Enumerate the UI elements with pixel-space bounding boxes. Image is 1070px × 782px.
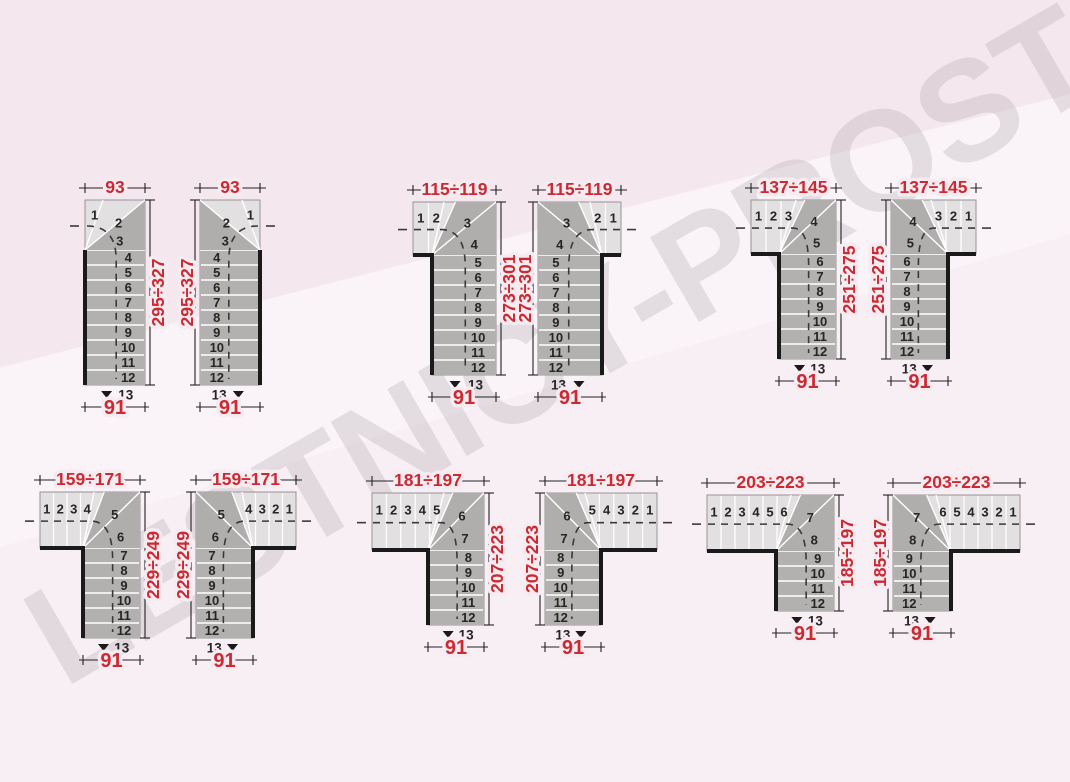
- step-number: 11: [813, 329, 827, 344]
- step-number: 1: [755, 209, 762, 224]
- dimension-side-label: 251÷275: [839, 245, 859, 313]
- dimension-top-label: 159÷171: [212, 469, 280, 489]
- step-number: 8: [557, 550, 564, 565]
- dimension-top-label: 181÷197: [394, 470, 462, 490]
- step-number: 5: [474, 255, 481, 270]
- dimension-bottom-label: 91: [559, 387, 581, 409]
- step-number: 3: [563, 216, 570, 231]
- dimension-top-label: 137÷145: [759, 177, 827, 197]
- step-number: 9: [552, 315, 559, 330]
- step-number: 12: [900, 344, 914, 359]
- dimension-bottom-label: 91: [219, 397, 241, 419]
- dimension-bottom-label: 91: [562, 637, 584, 659]
- step-number: 8: [465, 550, 472, 565]
- step-number: 10: [811, 566, 825, 581]
- flight-area: [85, 250, 145, 385]
- step-number: 10: [121, 340, 135, 355]
- step-number: 8: [208, 563, 215, 578]
- step-number: 1: [1009, 504, 1016, 519]
- step-number: 5: [552, 255, 559, 270]
- step-number: 1: [417, 210, 424, 225]
- step-number: 10: [117, 593, 131, 608]
- step-number: 9: [906, 551, 913, 566]
- step-number: 6: [780, 504, 787, 519]
- dimension-side-label: 251÷275: [868, 245, 888, 313]
- step-number: 7: [474, 285, 481, 300]
- staircase-93-right: 1234567891011121393295÷32791: [177, 177, 275, 419]
- staircase-115-119-right: 12345678910111213115÷119273÷30191: [515, 179, 636, 409]
- step-number: 1: [965, 209, 972, 224]
- dimension-side-label: 295÷327: [177, 258, 197, 326]
- step-number: 7: [552, 285, 559, 300]
- step-number: 1: [376, 503, 383, 518]
- step-number: 4: [752, 504, 760, 519]
- step-number: 8: [903, 284, 910, 299]
- step-number: 1: [43, 501, 50, 516]
- dimension-top-label: 115÷119: [421, 179, 487, 199]
- step-number: 6: [458, 508, 465, 523]
- step-number: 12: [902, 596, 916, 611]
- step-number: 2: [272, 501, 279, 516]
- dimension-bottom-label: 91: [796, 371, 818, 393]
- step-number: 2: [950, 209, 957, 224]
- step-number: 7: [208, 548, 215, 563]
- step-number: 6: [213, 280, 220, 295]
- step-number: 9: [213, 325, 220, 340]
- dimension-bottom-label: 91: [104, 397, 126, 419]
- step-number: 10: [210, 340, 224, 355]
- step-number: 9: [903, 299, 910, 314]
- dimension-top-label: 93: [105, 177, 125, 197]
- step-number: 4: [556, 237, 564, 252]
- step-number: 2: [223, 216, 230, 231]
- step-number: 12: [461, 610, 475, 625]
- step-number: 6: [939, 504, 946, 519]
- dimension-top-label: 115÷119: [546, 179, 612, 199]
- staircase-diagrams-canvas: LESTNICY-PROSTO.RU 123456789101112139329…: [0, 0, 1070, 782]
- step-number: 4: [245, 501, 253, 516]
- step-number: 9: [208, 578, 215, 593]
- step-number: 3: [116, 234, 123, 249]
- step-number: 6: [552, 270, 559, 285]
- step-number: 5: [125, 265, 132, 280]
- step-number: 3: [738, 504, 745, 519]
- step-number: 11: [554, 595, 568, 610]
- step-number: 9: [474, 315, 481, 330]
- step-number: 8: [474, 300, 481, 315]
- step-number: 8: [811, 532, 818, 547]
- step-number: 12: [813, 344, 827, 359]
- step-number: 7: [807, 510, 814, 525]
- step-number: 9: [120, 578, 127, 593]
- step-number: 4: [419, 503, 427, 518]
- staircase-115-119-left: 12345678910111213115÷119273÷30191: [398, 179, 519, 409]
- flight-area: [779, 254, 836, 359]
- dimension-bottom-label: 91: [453, 387, 475, 409]
- step-number: 3: [259, 501, 266, 516]
- step-number: 2: [57, 501, 64, 516]
- dimension-side-label: 185÷197: [837, 519, 857, 587]
- step-number: 5: [218, 507, 225, 522]
- step-number: 3: [935, 209, 942, 224]
- step-number: 4: [84, 501, 92, 516]
- step-number: 1: [286, 501, 293, 516]
- step-number: 4: [125, 250, 133, 265]
- step-number: 6: [474, 270, 481, 285]
- step-number: 8: [125, 310, 132, 325]
- step-number: 8: [213, 310, 220, 325]
- step-number: 7: [120, 548, 127, 563]
- step-number: 9: [816, 299, 823, 314]
- dimension-side-label: 273÷301: [515, 254, 535, 322]
- dimension-side-label: 229÷249: [173, 531, 193, 599]
- dimension-bottom-label: 91: [213, 650, 235, 672]
- staircase-159-171-right: 12345678910111213159÷171229÷24991: [173, 469, 311, 672]
- step-number: 4: [471, 237, 479, 252]
- step-number: 2: [770, 209, 777, 224]
- step-number: 5: [813, 236, 820, 251]
- step-number: 7: [461, 531, 468, 546]
- dimension-top-label: 137÷145: [899, 177, 967, 197]
- step-number: 6: [125, 280, 132, 295]
- step-number: 6: [816, 254, 823, 269]
- dimension-top-label: 203÷223: [922, 472, 990, 492]
- step-number: 6: [903, 254, 910, 269]
- step-number: 5: [213, 265, 220, 280]
- step-number: 2: [724, 504, 731, 519]
- step-number: 7: [903, 269, 910, 284]
- dimension-top-label: 181÷197: [567, 470, 635, 490]
- step-number: 10: [900, 314, 914, 329]
- step-number: 4: [213, 250, 221, 265]
- wall-line: [707, 551, 776, 611]
- step-number: 4: [603, 503, 611, 518]
- staircase-93-left: 1234567891011121393295÷32791: [70, 177, 168, 419]
- step-number: 12: [117, 623, 131, 638]
- step-number: 6: [117, 529, 124, 544]
- dimension-side-label: 207÷223: [487, 525, 507, 593]
- step-number: 10: [902, 566, 916, 581]
- wall-line: [40, 548, 83, 638]
- dimension-bottom-label: 91: [100, 650, 122, 672]
- step-number: 2: [115, 216, 122, 231]
- dimension-top-label: 203÷223: [736, 472, 804, 492]
- step-number: 7: [913, 510, 920, 525]
- step-number: 3: [981, 504, 988, 519]
- staircase-137-145-right: 12345678910111213137÷145251÷27591: [868, 177, 991, 393]
- step-number: 7: [213, 295, 220, 310]
- step-number: 10: [553, 580, 567, 595]
- dimension-bottom-label: 91: [911, 623, 933, 645]
- step-number: 1: [247, 208, 254, 223]
- step-number: 9: [465, 565, 472, 580]
- step-number: 5: [766, 504, 773, 519]
- step-number: 7: [125, 295, 132, 310]
- wall-line: [601, 550, 657, 625]
- step-number: 1: [646, 503, 653, 518]
- step-number: 12: [121, 370, 135, 385]
- flight-area: [428, 550, 484, 625]
- staircase-181-197-right: 12345678910111213181÷197207÷22391: [522, 470, 672, 659]
- step-number: 4: [810, 214, 818, 229]
- step-number: 3: [404, 503, 411, 518]
- step-number: 10: [471, 330, 485, 345]
- step-number: 2: [433, 210, 440, 225]
- step-number: 2: [995, 504, 1002, 519]
- wall-line: [413, 255, 432, 375]
- step-number: 11: [811, 581, 825, 596]
- dimension-top-label: 93: [220, 177, 240, 197]
- step-number: 3: [222, 234, 229, 249]
- step-number: 6: [563, 508, 570, 523]
- dimension-side-label: 229÷249: [143, 531, 163, 599]
- staircase-181-197-left: 12345678910111213181÷197207÷22391: [357, 470, 507, 659]
- step-number: 4: [909, 214, 917, 229]
- step-number: 8: [816, 284, 823, 299]
- step-number: 12: [811, 596, 825, 611]
- step-number: 10: [461, 580, 475, 595]
- step-number: 1: [610, 210, 617, 225]
- step-number: 11: [121, 355, 135, 370]
- staircase-137-145-left: 12345678910111213137÷145251÷27591: [736, 177, 859, 393]
- step-number: 5: [953, 504, 960, 519]
- step-number: 8: [120, 563, 127, 578]
- wall-line: [253, 548, 296, 638]
- dimension-bottom-label: 91: [794, 623, 816, 645]
- step-number: 10: [813, 314, 827, 329]
- step-number: 12: [549, 360, 563, 375]
- step-number: 9: [814, 551, 821, 566]
- step-number: 11: [900, 329, 914, 344]
- step-number: 3: [70, 501, 77, 516]
- step-number: 5: [907, 236, 914, 251]
- step-number: 1: [91, 208, 98, 223]
- wall-line: [751, 254, 779, 359]
- step-number: 12: [553, 610, 567, 625]
- wall-line: [602, 255, 621, 375]
- dimension-side-label: 207÷223: [522, 525, 542, 593]
- step-number: 9: [125, 325, 132, 340]
- dimension-bottom-label: 91: [445, 637, 467, 659]
- step-number: 11: [210, 355, 224, 370]
- step-number: 10: [549, 330, 563, 345]
- step-number: 7: [816, 269, 823, 284]
- step-number: 7: [560, 531, 567, 546]
- staircase-203-223-left: 12345678910111213203÷223185÷19791: [692, 472, 857, 645]
- step-number: 11: [205, 608, 219, 623]
- dimension-top-label: 159÷171: [56, 469, 124, 489]
- step-number: 12: [471, 360, 485, 375]
- step-number: 2: [390, 503, 397, 518]
- step-number: 2: [632, 503, 639, 518]
- step-number: 3: [464, 216, 471, 231]
- staircase-159-171-left: 12345678910111213159÷171229÷24991: [25, 469, 163, 672]
- dimension-bottom-label: 91: [908, 371, 930, 393]
- step-number: 8: [552, 300, 559, 315]
- step-number: 10: [205, 593, 219, 608]
- wall-line: [948, 254, 976, 359]
- step-number: 12: [205, 623, 219, 638]
- step-number: 8: [909, 532, 916, 547]
- step-number: 6: [212, 529, 219, 544]
- wall-line: [951, 551, 1020, 611]
- step-number: 11: [549, 345, 563, 360]
- staircase-diagrams: 1234567891011121393295÷32791123456789101…: [0, 0, 1070, 782]
- step-number: 1: [710, 504, 717, 519]
- step-number: 3: [785, 209, 792, 224]
- wall-line: [372, 550, 428, 625]
- step-number: 5: [111, 507, 118, 522]
- step-number: 11: [471, 345, 485, 360]
- step-number: 5: [589, 503, 596, 518]
- step-number: 12: [210, 370, 224, 385]
- dimension-side-label: 185÷197: [870, 519, 890, 587]
- step-number: 3: [617, 503, 624, 518]
- step-number: 11: [117, 608, 131, 623]
- step-number: 2: [594, 210, 601, 225]
- step-number: 9: [557, 565, 564, 580]
- step-number: 4: [967, 504, 975, 519]
- step-number: 5: [433, 503, 440, 518]
- staircase-203-223-right: 12345678910111213203÷223185÷19791: [870, 472, 1035, 645]
- step-number: 11: [461, 595, 475, 610]
- step-number: 11: [902, 581, 916, 596]
- dimension-side-label: 295÷327: [148, 258, 168, 326]
